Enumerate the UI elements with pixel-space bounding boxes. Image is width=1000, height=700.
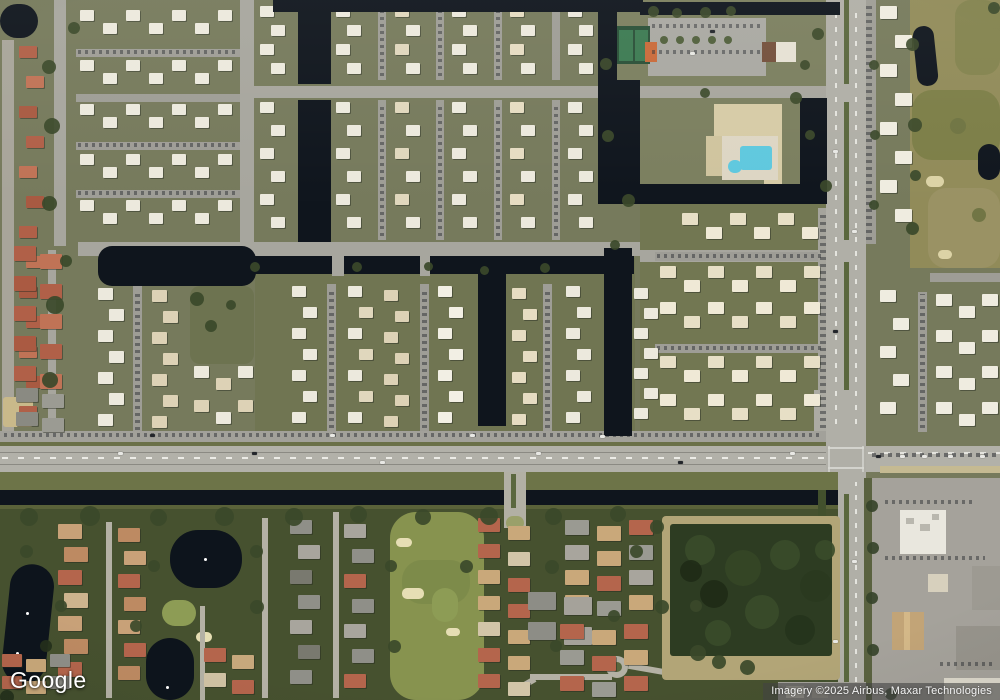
queued-cars [872,453,996,457]
condo-col [152,290,167,302]
townhouse-cluster [40,314,62,329]
condo-cluster [194,400,209,412]
condo-col [347,217,361,228]
condo-col [303,391,317,402]
condo-row [804,394,820,406]
condo-col [260,148,274,159]
car [948,455,953,458]
car [536,452,541,455]
townhouse-cluster [14,366,36,381]
tree [80,506,100,526]
parked-cars [78,191,238,195]
tree [610,240,620,250]
condo-col [512,288,526,299]
condo-row [80,200,94,211]
condo-row [149,73,163,84]
street [333,512,339,698]
car [690,52,695,55]
tree [424,262,433,271]
condo-row [754,227,770,239]
house-cluster [624,676,648,691]
townhouse-col [19,46,37,58]
house-cluster [508,656,530,670]
house-col [58,616,82,631]
condo-col [452,102,466,113]
parked-cars [657,254,823,258]
house-cluster [508,552,530,566]
tree [820,180,832,192]
tree [869,200,879,210]
tree [545,560,559,574]
house-cluster [478,544,500,558]
parked-cars [652,50,764,54]
car [150,434,155,437]
condo-col [568,44,582,55]
condo-col [880,6,897,19]
house-cluster [50,654,70,667]
tree [250,262,260,272]
car [833,330,838,333]
parking-strip [930,273,1000,282]
townhouse-col [26,76,44,88]
tree [672,8,682,18]
tree [700,580,728,608]
tree [705,620,731,646]
parking-strip [552,4,560,80]
condo-row [936,366,952,378]
condo-row [195,73,209,84]
tree [815,540,835,560]
condo-row [80,154,94,165]
condo-row [80,104,94,115]
house-col [290,620,312,634]
condo-cluster [216,412,231,424]
house-cluster [592,682,616,697]
car [600,435,605,438]
tree [42,60,56,74]
tree [690,645,706,661]
condo-col [336,194,350,205]
condo-col [152,374,167,386]
house-col [298,595,320,609]
tree [545,508,562,525]
condo-col [568,102,582,113]
parked-cars [657,346,823,350]
house-col [118,528,140,542]
condo-col [395,102,409,113]
condo-row [959,414,975,426]
house-cluster [565,570,589,585]
condo-col [406,63,420,74]
condo-col [98,414,113,426]
tree [906,38,919,51]
canal [478,272,506,426]
condo-col [512,414,526,425]
condo-col [359,349,373,360]
condo-col [634,368,648,379]
condo-col [577,349,591,360]
car [833,640,838,643]
condo-col [895,151,912,164]
tree [150,509,167,526]
condo-col [359,391,373,402]
condo-row [982,330,998,342]
tree [540,263,550,273]
condo-col [566,286,580,297]
condo-cluster [238,366,253,378]
condo-row [756,356,772,368]
house-cluster [565,520,589,535]
fountain [26,612,29,615]
house-col [344,674,366,688]
condo-row [684,316,700,328]
condo-row [218,200,232,211]
highway-median [844,262,849,390]
tree [660,36,668,44]
condo-col [523,309,537,320]
townhouse-cluster [40,254,62,269]
house-cluster [204,673,226,687]
townhouse-col [26,136,44,148]
tree [805,130,815,140]
condo-row [195,117,209,128]
pond [98,246,256,286]
condo-row [684,370,700,382]
canal-bridge [332,254,344,276]
condo-col [512,372,526,383]
condo-col [395,44,409,55]
condo-row [103,73,117,84]
parked-cars [380,104,384,236]
condo-col [359,307,373,318]
condo-col [644,308,658,319]
fountain [166,686,169,689]
house-cluster [232,655,254,669]
sand-bunker [396,538,412,547]
condo-row [756,302,772,314]
crosswalk [828,447,864,449]
condo-col [510,194,524,205]
highway-median [844,494,849,700]
house-cluster [478,648,500,662]
sand-bunker [402,588,424,599]
condo-row [802,227,818,239]
tree [870,130,880,140]
car [876,455,881,458]
crosswalk [862,446,864,472]
house-cluster [508,604,530,618]
condo-row [103,213,117,224]
townhouse-cluster [14,276,36,291]
house-cluster [478,596,500,610]
tree [600,58,612,70]
condo-col [384,290,398,301]
tree [988,2,1000,14]
tree [745,595,779,629]
condo-row [778,213,794,225]
condo-col [644,348,658,359]
condo-col [438,286,452,297]
house-cluster [597,526,621,541]
house-col [352,549,374,563]
tennis-court [619,30,633,61]
condo-row [730,213,746,225]
car [678,461,683,464]
condo-col [579,217,593,228]
condo-col [384,374,398,385]
tree [770,540,800,570]
house-cluster [478,570,500,584]
condo-col [395,311,409,322]
parked-cars [422,288,427,428]
condo-col [512,330,526,341]
google-logo[interactable]: Google [10,667,87,694]
condo-col [463,25,477,36]
condo-cluster [216,378,231,390]
canal-bank [0,505,838,509]
commercial-building [928,574,948,592]
house-cluster [629,570,653,585]
parked-cars [496,8,500,76]
parked-cars [135,290,140,430]
pool-main [740,146,772,170]
tree [68,22,80,34]
house-cluster [624,624,648,639]
canal [598,8,617,84]
tree [800,60,810,70]
condo-row [682,213,698,225]
condo-col [152,332,167,344]
condo-row [660,266,676,278]
tree [460,560,473,573]
tree [648,6,659,17]
condo-col [303,349,317,360]
condo-col [880,346,896,358]
condo-col [406,125,420,136]
tree [866,500,878,512]
house-col [64,639,88,654]
condo-row [708,302,724,314]
tree [692,36,700,44]
condo-row [732,316,748,328]
condo-row [732,280,748,292]
condo-col [98,372,113,384]
house-cluster [508,630,530,644]
condo-col [568,148,582,159]
condo-col [271,171,285,182]
tree [972,208,986,222]
condo-col [523,351,537,362]
highway-median [844,0,849,84]
condo-row [982,366,998,378]
condo-col [347,63,361,74]
condo-row [936,330,952,342]
parked-cars [438,8,442,76]
putting-green [162,600,196,626]
condo-col [260,102,274,113]
house-cluster [629,595,653,610]
canal [254,256,634,274]
townhouse-cluster [14,306,36,321]
tree [480,507,498,525]
house-col [344,624,366,638]
imagery-attribution: Imagery ©2025 Airbus, Maxar Technologies [763,683,1000,700]
condo-row [936,294,952,306]
condo-row [756,394,772,406]
parked-cars [652,24,764,28]
condo-row [959,306,975,318]
condo-row [149,213,163,224]
condo-row [80,10,94,21]
tree [352,262,362,272]
condo-col [260,44,274,55]
house-col [352,649,374,663]
condo-col [463,217,477,228]
house-cluster [528,592,556,610]
tree [55,600,67,612]
condo-row [218,60,232,71]
condo-col [271,125,285,136]
lane-dash [835,4,837,424]
house-cluster [478,674,500,688]
lane-dash [855,482,857,696]
pond [978,144,1000,180]
tree [608,610,620,622]
condo-cluster [194,366,209,378]
house-cluster [560,676,584,691]
condo-col [510,44,524,55]
townhouse-cluster [42,418,64,432]
condo-col [521,25,535,36]
condo-col [452,44,466,55]
commercial-building [972,566,1000,610]
satellite-map-view: Google Imagery ©2025 Airbus, Maxar Techn… [0,0,1000,700]
condo-row [218,154,232,165]
house-cluster [508,578,530,592]
parked-cars [438,104,442,236]
condo-col [292,328,306,339]
condo-col [579,63,593,74]
townhouse-cluster [16,388,38,402]
tree [867,542,879,554]
condo-col [523,393,537,404]
parked-cars [554,104,558,236]
car [852,230,857,233]
condo-row [103,117,117,128]
tree [388,640,401,653]
tree [712,655,726,669]
condo-col [271,217,285,228]
house-cluster [478,622,500,636]
house-cluster [564,597,592,615]
condo-row [959,342,975,354]
sand-bunker [446,628,460,636]
rooftop-unit [932,514,939,520]
condo-row [780,316,796,328]
tree [655,600,669,614]
tree [40,640,52,652]
condo-col [348,412,362,423]
condo-col [395,194,409,205]
tree [708,36,716,44]
street [106,522,112,698]
condo-col [109,351,124,363]
condo-col [566,370,580,381]
parked-cars [885,500,975,504]
condo-col [152,416,167,428]
condo-col [163,395,178,407]
condo-col [260,6,274,17]
tree [700,88,710,98]
townhouse-col [19,106,37,118]
condo-col [510,148,524,159]
condo-row [660,394,676,406]
car [118,452,123,455]
townhouse-cluster [14,246,36,261]
road-vertical-1 [240,0,254,258]
condo-row [149,23,163,34]
condo-row [103,23,117,34]
condo-col [163,353,178,365]
tree [205,320,217,332]
tree [148,560,160,572]
house-col [352,599,374,613]
parked-cars [496,104,500,236]
condo-row [195,23,209,34]
condo-row [195,213,209,224]
condo-col [452,194,466,205]
map-canvas[interactable] [0,0,1000,700]
condo-col [347,171,361,182]
lane-dash [855,4,857,424]
condo-col [395,395,409,406]
townhouse-col [19,166,37,178]
roof-ridge [904,612,910,650]
house-col [58,524,82,539]
lane-dash-center [2,457,826,459]
car [922,455,927,458]
car [833,150,838,153]
condo-col [406,217,420,228]
tree [610,506,626,522]
tree [812,28,824,40]
condo-col [463,171,477,182]
tree [910,170,921,181]
condo-col [895,93,912,106]
condo-row [172,104,186,115]
tree [622,194,635,207]
condo-col [303,307,317,318]
condo-row [172,200,186,211]
tree [676,36,684,44]
condo-col [336,44,350,55]
tree [190,292,204,306]
condo-cluster [238,400,253,412]
tree [46,296,64,314]
condo-col [438,328,452,339]
verge-south [0,472,838,490]
tree [415,509,431,525]
condo-row [732,370,748,382]
rec-clubhouse-north-roof [762,42,776,62]
condo-row [80,60,94,71]
parked-cars [920,294,925,428]
condo-row [936,402,952,414]
condo-col [395,148,409,159]
condo-row [804,266,820,278]
house-cluster [624,650,648,665]
tree [250,545,263,558]
